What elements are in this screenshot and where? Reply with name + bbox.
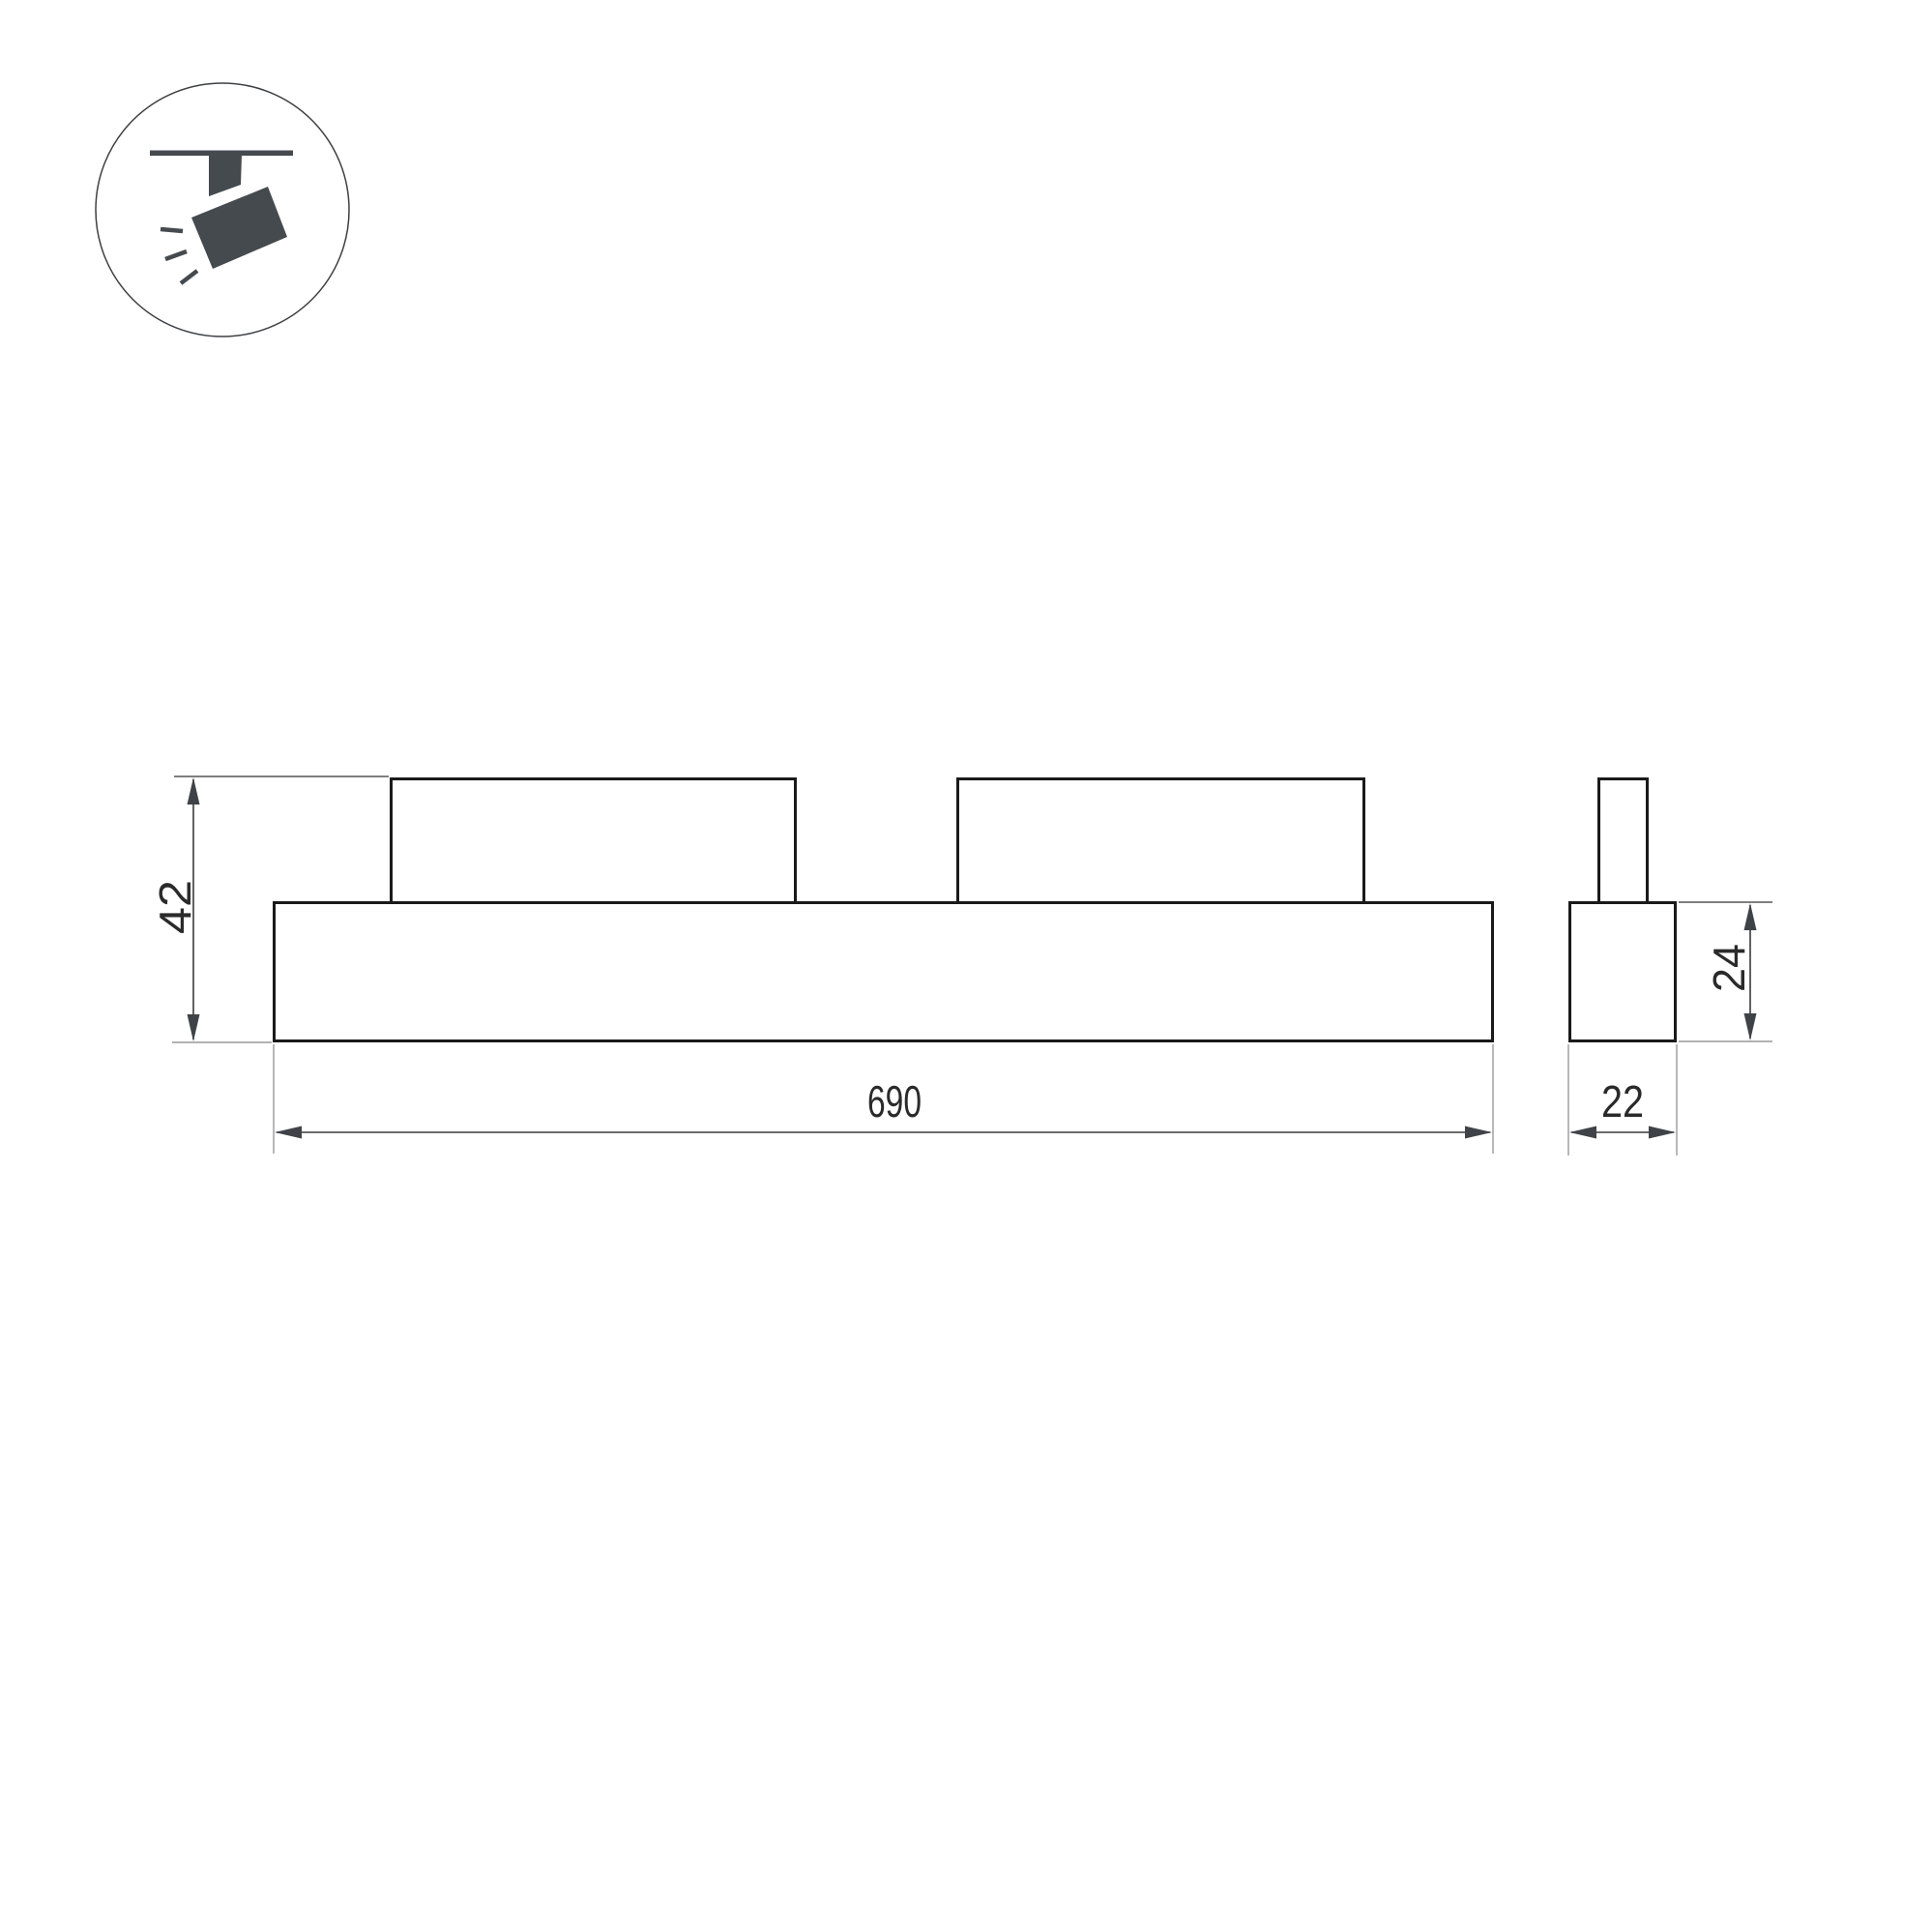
dim-label-24: 24 xyxy=(1704,944,1754,992)
dimension-width-22: 22 xyxy=(1569,1076,1676,1139)
side-view-body xyxy=(1570,903,1676,1041)
dimension-height-42: 42 xyxy=(150,777,200,1041)
front-view-body-bar xyxy=(275,903,1493,1041)
arrow-left-icon xyxy=(275,1127,302,1139)
arrow-left-icon xyxy=(1569,1127,1596,1139)
dim-label-42: 42 xyxy=(150,880,200,934)
arrow-right-icon xyxy=(1465,1127,1492,1139)
arrow-down-icon xyxy=(1744,1013,1757,1040)
dim-label-22: 22 xyxy=(1601,1076,1644,1127)
dimension-length-690: 690 xyxy=(275,1076,1492,1139)
arrow-right-icon xyxy=(1649,1127,1676,1139)
arrow-up-icon xyxy=(188,777,200,805)
front-view-top-box-right xyxy=(958,779,1364,903)
side-view xyxy=(1570,779,1676,1041)
track-spotlight-icon xyxy=(96,83,349,337)
dimension-height-24: 24 xyxy=(1704,903,1757,1040)
luminaire-dimension-drawing: 42 690 24 22 xyxy=(0,0,1932,1932)
arrow-up-icon xyxy=(1744,903,1757,930)
front-view xyxy=(275,779,1493,1041)
front-view-top-box-left xyxy=(392,779,796,903)
technical-drawing-canvas: 42 690 24 22 xyxy=(0,0,1932,1932)
dim-label-690: 690 xyxy=(867,1076,922,1127)
arrow-down-icon xyxy=(188,1014,200,1041)
side-view-stem xyxy=(1599,779,1648,903)
